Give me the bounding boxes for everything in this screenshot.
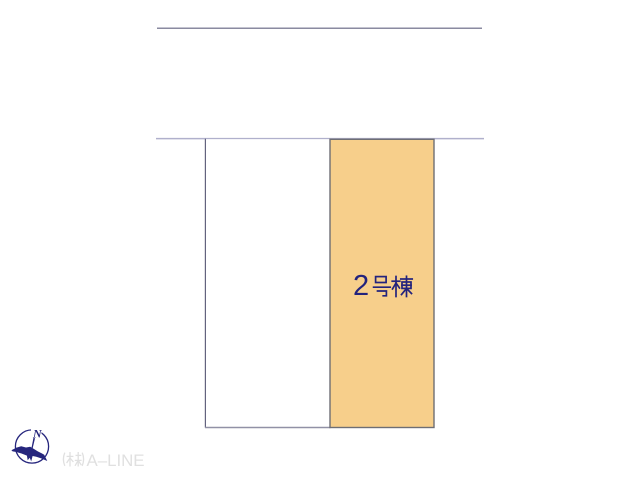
- svg-text:A–LINE: A–LINE: [87, 452, 145, 470]
- svg-text:2: 2: [353, 270, 369, 302]
- svg-text:N: N: [32, 426, 43, 440]
